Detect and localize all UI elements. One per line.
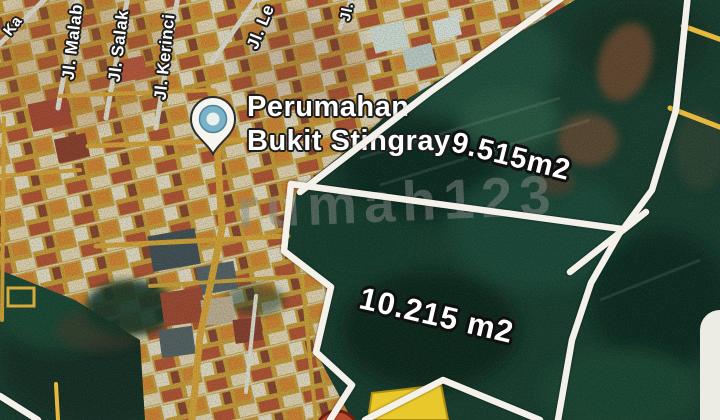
satellite-map[interactable]: rumah123 Jl. Malab Jl. Salak Jl. Kerinci… <box>0 0 720 420</box>
place-label-line1: Perumahan <box>247 90 451 124</box>
pin-center <box>207 113 220 126</box>
place-label-line2: Bukit Stingray <box>247 124 451 158</box>
place-marker-pin[interactable] <box>187 92 239 158</box>
place-label: Perumahan Bukit Stingray <box>247 90 451 158</box>
